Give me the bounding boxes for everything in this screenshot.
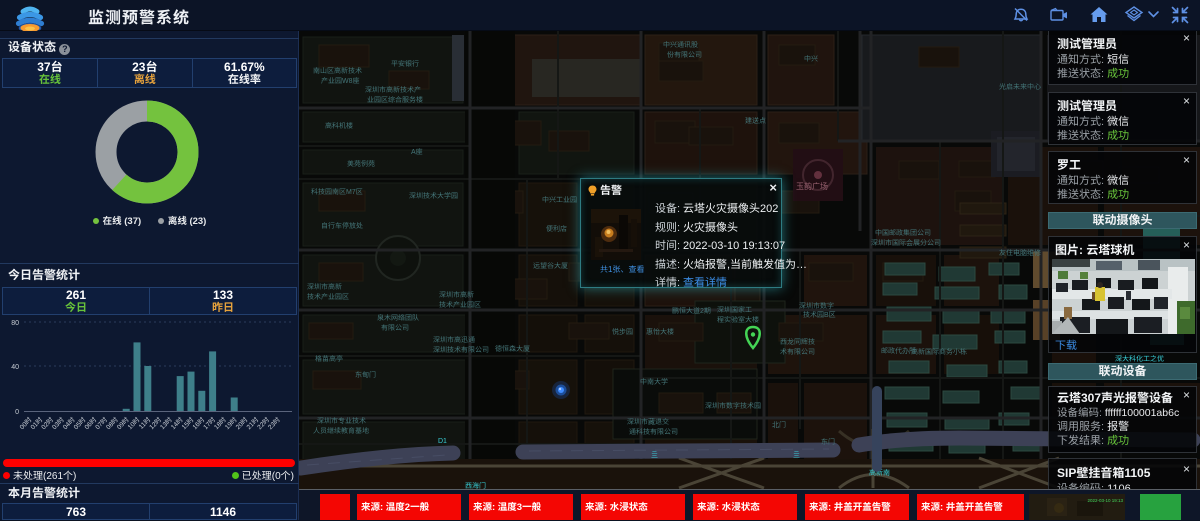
svg-text:便利店: 便利店 (546, 225, 567, 233)
svg-text:美苑例苑: 美苑例苑 (347, 160, 375, 168)
svg-text:深圳技术有限公司: 深圳技术有限公司 (433, 346, 489, 354)
svg-text:泉木网络团队: 泉木网络团队 (377, 314, 419, 322)
svg-text:深圳市藏退交: 深圳市藏退交 (627, 417, 669, 426)
svg-text:中兴工业园: 中兴工业园 (542, 196, 577, 204)
svg-text:深圳国家工: 深圳国家工 (717, 306, 752, 314)
svg-text:亖: 亖 (651, 451, 658, 459)
svg-text:建送点: 建送点 (745, 117, 766, 125)
svg-text:业园区综合服务楼: 业园区综合服务楼 (367, 96, 423, 104)
svg-text:深大科化工之优: 深大科化工之优 (1115, 355, 1164, 363)
svg-text:23时: 23时 (266, 415, 282, 431)
svg-text:西龙同辉技: 西龙同辉技 (780, 337, 815, 346)
svg-text:产业园W8座: 产业园W8座 (321, 77, 360, 85)
svg-text:深圳市国际会展分公司: 深圳市国际会展分公司 (871, 238, 941, 247)
svg-text:高科机楼: 高科机楼 (325, 122, 353, 130)
svg-text:深圳市数字技术园: 深圳市数字技术园 (705, 402, 761, 410)
svg-text:深圳技术大学园: 深圳技术大学园 (409, 192, 458, 200)
svg-text:中国邮政集团公司: 中国邮政集团公司 (875, 229, 931, 237)
svg-text:深圳市专业技术: 深圳市专业技术 (317, 416, 366, 425)
svg-text:友住电脑维修: 友住电脑维修 (999, 248, 1041, 257)
svg-text:悦步园: 悦步园 (612, 328, 633, 336)
svg-text:A座: A座 (411, 148, 423, 156)
svg-text:光启未来中心: 光启未来中心 (999, 83, 1041, 91)
svg-text:科技园南区M7区: 科技园南区M7区 (311, 188, 363, 196)
svg-text:通科技有限公司: 通科技有限公司 (629, 428, 678, 436)
svg-text:亖: 亖 (793, 451, 800, 459)
svg-text:程实验室大楼: 程实验室大楼 (717, 316, 759, 324)
svg-text:有限公司: 有限公司 (381, 324, 409, 332)
svg-text:东门: 东门 (821, 438, 835, 446)
svg-text:深圳市高迅通: 深圳市高迅通 (433, 336, 475, 344)
svg-text:术有限公司: 术有限公司 (780, 348, 815, 356)
svg-text:远望谷大厦: 远望谷大厦 (533, 262, 568, 270)
svg-text:人员继续教育基地: 人员继续教育基地 (313, 427, 369, 435)
svg-text:2022-03-10 19:13: 2022-03-10 19:13 (1087, 498, 1123, 503)
svg-text:技术产业园区: 技术产业园区 (439, 301, 481, 309)
svg-text:中兴: 中兴 (804, 55, 818, 63)
svg-text:北门: 北门 (772, 421, 786, 429)
svg-text:0: 0 (15, 409, 19, 416)
svg-text:高新国际商务小栋: 高新国际商务小栋 (911, 348, 967, 356)
svg-text:深圳市数字: 深圳市数字 (799, 302, 834, 310)
svg-text:平安银行: 平安银行 (391, 60, 419, 68)
svg-text:德恒森大厦: 德恒森大厦 (495, 345, 530, 353)
svg-text:80: 80 (11, 320, 19, 327)
svg-text:鹏恒大道2期: 鹏恒大道2期 (672, 306, 711, 315)
svg-text:邮政代办所: 邮政代办所 (881, 346, 916, 355)
svg-text:深圳市高新: 深圳市高新 (307, 283, 342, 291)
svg-text:40: 40 (11, 364, 19, 371)
svg-text:D1: D1 (438, 438, 447, 445)
svg-text:自行车停放处: 自行车停放处 (321, 222, 363, 230)
svg-text:东甸门: 东甸门 (355, 371, 376, 379)
svg-text:中兴通讯股: 中兴通讯股 (663, 41, 698, 49)
svg-text:深圳市高新技术产: 深圳市高新技术产 (365, 86, 421, 94)
svg-text:中南大学: 中南大学 (640, 378, 668, 386)
svg-text:份有限公司: 份有限公司 (667, 51, 702, 59)
svg-text:西海门: 西海门 (465, 482, 486, 489)
svg-text:惠怡大楼: 惠怡大楼 (646, 328, 674, 336)
svg-text:南山区高新技术: 南山区高新技术 (313, 67, 362, 75)
svg-text:技术产业园区: 技术产业园区 (307, 293, 349, 301)
svg-text:玉韵广场: 玉韵广场 (796, 181, 828, 191)
svg-text:深圳市高新: 深圳市高新 (439, 291, 474, 299)
svg-text:技术园B区: 技术园B区 (803, 311, 836, 319)
svg-text:格苗高亭: 格苗高亭 (315, 355, 343, 363)
